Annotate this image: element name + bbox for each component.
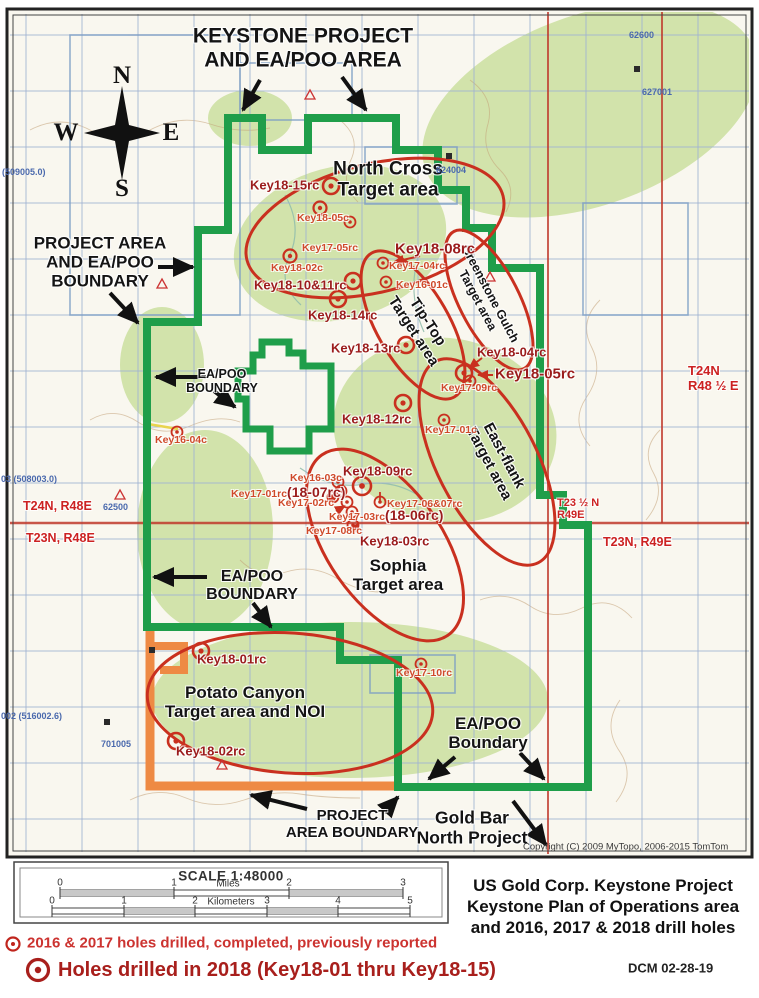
project-area-bottom-label: PROJECT AREA BOUNDARY bbox=[286, 808, 418, 842]
hole-label-key17-03rc-18-06rc: Key17-03rc(18-06rc) bbox=[329, 507, 443, 525]
hole-label-key18-01rc: Key18-01rc bbox=[197, 653, 266, 668]
hole-label-key17-04rc: Key17-04rc bbox=[389, 261, 445, 273]
map-title-line1: KEYSTONE PROJECT bbox=[193, 24, 413, 48]
eapoo-inner-label: EA/POO BOUNDARY bbox=[186, 367, 258, 395]
grid-label-516002: 002 (516002.6) bbox=[1, 711, 62, 721]
grid-label-624004: 624004 bbox=[436, 165, 466, 175]
km-tick-3: 3 bbox=[264, 895, 270, 906]
hole-label-key17-09rc: Key17-09rc bbox=[441, 383, 497, 395]
hole-label-key18-10-11rc: Key18-10&11rc bbox=[254, 279, 347, 294]
miles-tick-0: 0 bbox=[57, 877, 63, 888]
compass-n: N bbox=[113, 62, 131, 90]
km-tick-5: 5 bbox=[407, 895, 413, 906]
hole-label-key18-08rc: Key18-08rc bbox=[395, 242, 475, 259]
compass-w: W bbox=[54, 119, 79, 147]
legend-2018-text: Holes drilled in 2018 (Key18-01 thru Key… bbox=[58, 959, 496, 981]
hole-label-key18-03rc: Key18-03rc bbox=[360, 535, 429, 550]
grid-label-701005: 701005 bbox=[101, 739, 131, 749]
legend-2016-2017-text: 2016 & 2017 holes drilled, completed, pr… bbox=[27, 936, 437, 953]
township-t23n-r48e: T23N, R48E bbox=[26, 531, 95, 545]
inner-eapoo-boundary bbox=[238, 342, 331, 451]
compass-e: E bbox=[163, 119, 180, 147]
hole-label-key18-05rc: Key18-05rc bbox=[495, 367, 575, 384]
compass-rose-icon bbox=[84, 86, 160, 180]
hole-label-key17-05rc: Key17-05rc bbox=[302, 243, 358, 255]
hole-label-key18-04rc: Key18-04rc bbox=[477, 346, 546, 361]
map-caption: US Gold Corp. Keystone Project Keystone … bbox=[455, 875, 751, 938]
eapoo-bottom-right-label: EA/POO Boundary bbox=[448, 714, 527, 752]
scale-miles-label: Miles bbox=[216, 878, 239, 889]
hole-label-key17-10rc: Key17-10rc bbox=[396, 668, 452, 680]
project-area-eapoo-label: PROJECT AREA AND EA/POO BOUNDARY bbox=[34, 233, 167, 290]
hole-label-key18-02c: Key18-02c bbox=[271, 263, 323, 275]
hole-label-key18-13rc: Key18-13rc bbox=[331, 342, 400, 357]
km-tick-1: 1 bbox=[121, 895, 127, 906]
hole-label-key18-15rc: Key18-15rc bbox=[250, 179, 319, 194]
hole-label-key18-12rc: Key18-12rc bbox=[342, 413, 411, 428]
hole-label-key18-02rc: Key18-02rc bbox=[176, 745, 245, 760]
sophia-label: Sophia Target area bbox=[353, 556, 443, 594]
township-t24n-r48e: T24N, R48E bbox=[23, 499, 92, 513]
grid-label-627001: 627001 bbox=[642, 87, 672, 97]
hole-label-key16-04c: Key16-04c bbox=[155, 435, 207, 447]
miles-tick-2: 2 bbox=[286, 877, 292, 888]
km-tick-0: 0 bbox=[49, 895, 55, 906]
hole-label-key16-01c: Key16-01c bbox=[396, 280, 448, 292]
keystone-project-map-page: KEYSTONE PROJECT AND EA/POO AREA N W E S… bbox=[0, 0, 759, 998]
grid-label-62600: 62600 bbox=[629, 30, 654, 40]
hole-label-key17-01c: Key17-01c bbox=[425, 425, 477, 437]
hole-label-key18-14rc: Key18-14rc bbox=[308, 309, 377, 324]
potato-canyon-label: Potato Canyon Target area and NOI bbox=[165, 683, 325, 721]
township-t23half-r49e: T23 ½ N R49E bbox=[557, 497, 599, 522]
grid-label-509005: (509005.0) bbox=[2, 167, 46, 177]
caption-credit: DCM 02-28-19 bbox=[628, 962, 713, 977]
copyright-text: Copyright (C) 2009 MyTopo, 2006-2015 Tom… bbox=[523, 843, 728, 854]
miles-tick-3: 3 bbox=[400, 877, 406, 888]
hole-label-key17-08rc: Key17-08rc bbox=[306, 526, 362, 538]
map-title: KEYSTONE PROJECT AND EA/POO AREA bbox=[193, 24, 413, 71]
miles-tick-1: 1 bbox=[171, 877, 177, 888]
hole-label-key17-02rc: Key17-02rc bbox=[278, 498, 334, 510]
township-t23n-r49e: T23N, R49E bbox=[603, 535, 672, 549]
north-cross-label: North Cross Target area bbox=[333, 159, 443, 202]
hole-label-key18-05c: Key18-05c bbox=[297, 213, 349, 225]
grid-label-62500: 62500 bbox=[103, 502, 128, 512]
km-tick-2: 2 bbox=[192, 895, 198, 906]
km-tick-4: 4 bbox=[335, 895, 341, 906]
map-title-line2: AND EA/POO AREA bbox=[193, 48, 413, 72]
eapoo-lower-label: EA/POO BOUNDARY bbox=[206, 568, 298, 604]
gold-bar-north-label: Gold Bar North Project bbox=[417, 808, 528, 847]
compass-s: S bbox=[115, 175, 129, 203]
grid-label-508003: 03 (508003.0) bbox=[1, 474, 57, 484]
scale-km-label: Kilometers bbox=[207, 896, 254, 907]
hole-label-key18-09rc: Key18-09rc bbox=[343, 465, 412, 480]
township-t24n-r48half: T24N R48 ½ E bbox=[688, 364, 739, 393]
